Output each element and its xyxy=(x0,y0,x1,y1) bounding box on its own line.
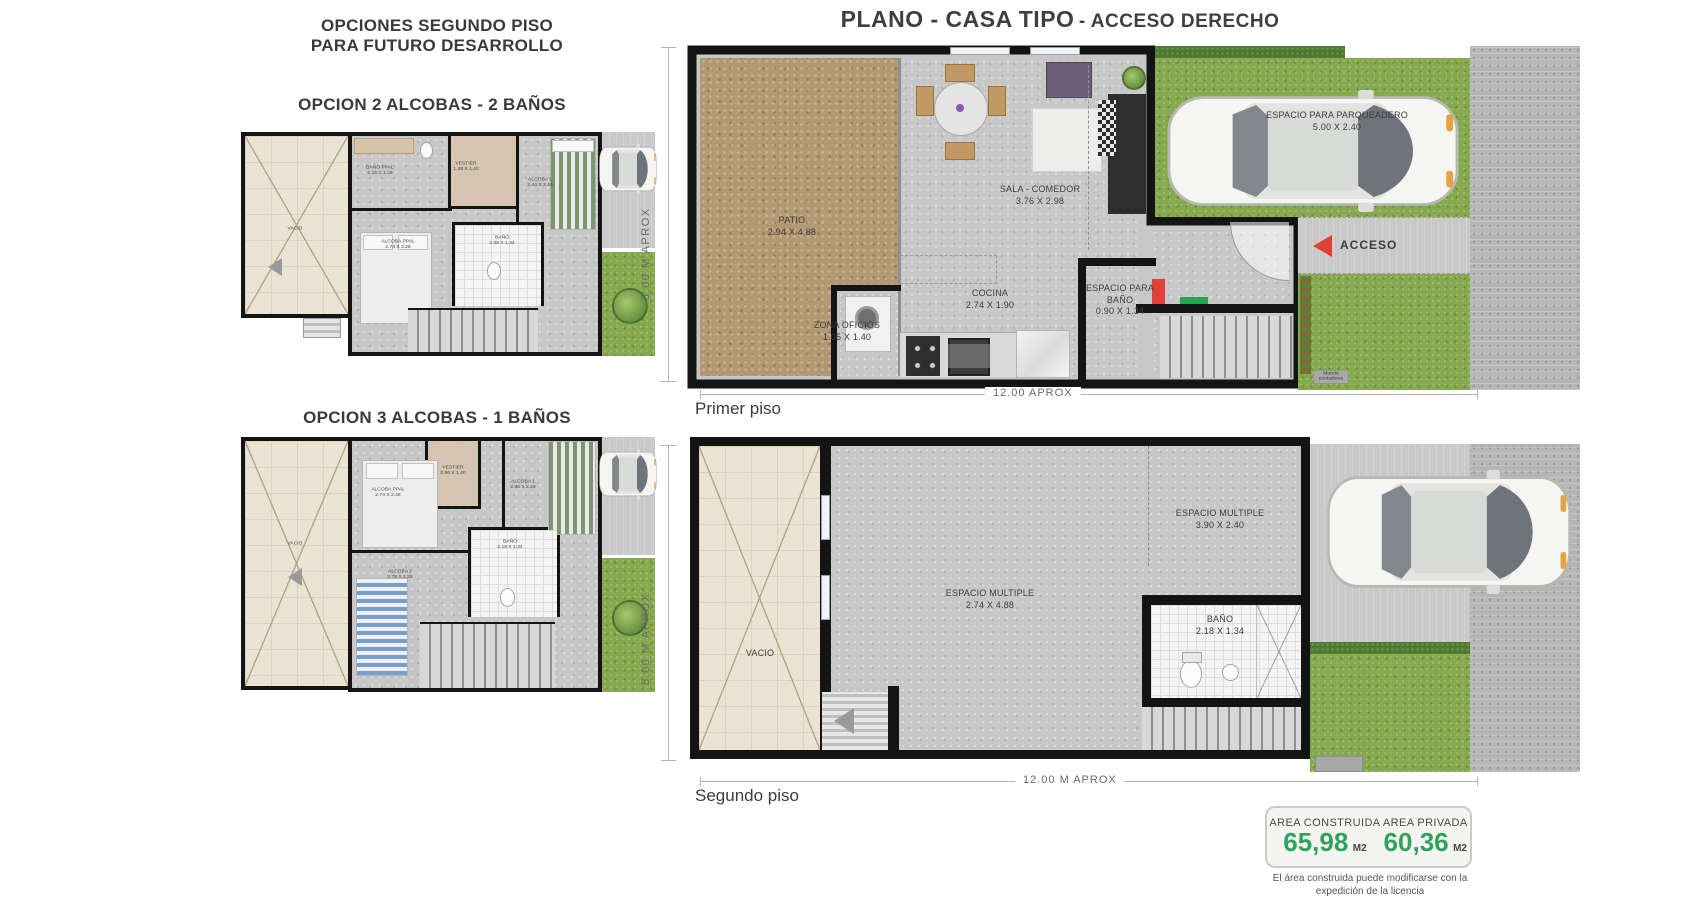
floor1-vertical-dim-label: 5.00 M APROX xyxy=(640,140,652,300)
room-label-vestier: VESTIER 1.48 X 1.40 xyxy=(446,160,486,171)
toilet-icon xyxy=(500,588,515,607)
room-label-cocina: COCINA 2.74 X 1.90 xyxy=(940,288,1040,311)
murete-box xyxy=(1315,756,1363,772)
stove-icon xyxy=(906,336,940,376)
sink-icon xyxy=(1222,664,1239,681)
room-label-bano: BAÑO 2.18 X 1.34 xyxy=(1176,614,1264,637)
room-label-parqueadero: ESPACIO PARA PARQUEADERO 5.00 X 2.40 xyxy=(1262,110,1412,133)
room-label-espacio-bano: ESPACIO PARA BAÑO 0.90 X 1.34 xyxy=(1083,283,1157,318)
car-top-view xyxy=(1326,470,1572,594)
car-top-view xyxy=(1166,90,1460,212)
chair-icon xyxy=(945,64,975,82)
patio-glass-wall xyxy=(898,58,901,376)
toilet-tank xyxy=(1182,652,1202,663)
wall xyxy=(888,686,899,750)
wall xyxy=(1136,304,1294,313)
room-label-bano: BAÑO 2.18 X 1.34 xyxy=(485,538,535,549)
area-construida-value: 65,98 xyxy=(1283,827,1348,857)
option2-title: OPCION 3 ALCOBAS - 1 BAÑOS xyxy=(262,408,612,428)
area-privada: AREA PRIVADA 60,36 M2 xyxy=(1383,817,1468,856)
wall xyxy=(541,222,544,306)
option1-stair-arrow-icon xyxy=(268,258,282,276)
dim-tick xyxy=(661,381,676,382)
wall xyxy=(1078,258,1156,266)
room-label-alcoba-ppal: ALCOBA PPAL 2.74 X 3.28 xyxy=(369,238,426,249)
options-header: OPCIONES SEGUNDO PISO PARA FUTURO DESARR… xyxy=(262,16,612,56)
hedge xyxy=(1310,642,1470,654)
dim-tick xyxy=(661,47,676,48)
sofa-icon xyxy=(1046,62,1092,98)
floor2-balcony xyxy=(822,692,888,750)
room-label-espacio-multiple-1: ESPACIO MULTIPLE 2.74 X 4.88 xyxy=(910,588,1070,611)
floor1-vertical-dim-line xyxy=(668,48,669,381)
area-disclaimer: El área construida puede modificarse con… xyxy=(1250,873,1490,898)
bed xyxy=(356,578,408,676)
room-label-bano: BAÑO 2.08 X 1.34 xyxy=(477,234,527,245)
floor2-grass xyxy=(1310,654,1470,772)
room-label-alcoba2: ALCOBA 2 2.79 X 2.28 xyxy=(370,568,430,579)
floor2-horizontal-dim-label: 12.00 M APROX xyxy=(1015,774,1125,786)
room-label-zona-oficios: ZONA OFICIOS 1.05 X 1.40 xyxy=(807,320,887,343)
dim-tick xyxy=(661,445,676,446)
bath-counter xyxy=(354,138,414,154)
wall xyxy=(478,441,481,509)
window-icon xyxy=(821,575,830,620)
murete-label: Murete contadores xyxy=(1314,370,1349,384)
option2-stairs xyxy=(420,622,555,688)
floor1-horizontal-dim-label: 12.00 APROX xyxy=(985,387,1081,399)
room-label-bano-ppal: BAÑO PPAL 2.16 X 1.28 xyxy=(351,164,408,175)
hedge xyxy=(1155,46,1345,58)
car-top-view xyxy=(599,449,657,499)
window-icon xyxy=(821,495,830,540)
double-height-line xyxy=(1148,446,1149,566)
page-title: PLANO - CASA TIPO - ACCESO DERECHO xyxy=(760,6,1360,33)
area-privada-unit: M2 xyxy=(1453,843,1467,854)
floor1-stairs xyxy=(1160,316,1292,378)
wall xyxy=(1142,595,1301,605)
wall xyxy=(1142,595,1151,707)
area-construida-unit: M2 xyxy=(1353,843,1367,854)
window-icon xyxy=(950,47,1010,55)
pillow xyxy=(366,463,398,479)
acceso-label: ACCESO xyxy=(1340,238,1397,252)
wall xyxy=(557,527,560,617)
chair-icon xyxy=(916,86,934,116)
wall xyxy=(352,550,472,553)
dim-tick xyxy=(661,760,676,761)
toilet-icon xyxy=(1180,660,1202,688)
wall xyxy=(1078,258,1086,380)
option2-stair-arrow-icon xyxy=(288,568,302,586)
floor2-stairs xyxy=(1142,707,1301,750)
plant-icon xyxy=(1122,66,1146,90)
beam-projection-outline xyxy=(900,255,997,284)
floor1-horizontal-dim-line xyxy=(700,394,1478,395)
area-summary-box: AREA CONSTRUIDA 65,98 M2 AREA PRIVADA 60… xyxy=(1265,806,1472,868)
option1-balcony xyxy=(303,318,341,338)
room-label-sala-comedor: SALA - COMEDOR 3.76 X 2.98 xyxy=(960,184,1120,207)
dim-tick xyxy=(1477,390,1478,399)
chair-icon xyxy=(988,86,1006,116)
wall xyxy=(1142,698,1301,707)
room-label-patio: PATIO 2.94 X 4.88 xyxy=(742,215,842,238)
toilet-icon xyxy=(420,142,433,159)
floor2-vertical-dim-label: 5.00 M APROX xyxy=(640,525,652,685)
floorplan-sheet: PLANO - CASA TIPO - ACCESO DERECHO OPCIO… xyxy=(0,0,1701,900)
dim-tick xyxy=(700,777,701,786)
room-label-vacio: VACIO xyxy=(270,540,320,546)
wall xyxy=(352,208,452,211)
page-title-sub: - ACCESO DERECHO xyxy=(1079,11,1279,32)
room-label-espacio-multiple-2: ESPACIO MULTIPLE 3.90 X 2.40 xyxy=(1140,508,1300,531)
option2-vacio-area xyxy=(241,437,352,690)
room-label-alcoba1: ALCOBA 1 2.85 X 2.49 xyxy=(501,478,544,489)
balcony-arrow-icon xyxy=(834,708,854,734)
table-flower-icon xyxy=(956,104,964,112)
room-label-alcoba1: ALCOBA 1 2.44 X 2.49 xyxy=(518,176,561,187)
pillow xyxy=(552,140,594,152)
acceso-arrow-icon xyxy=(1313,235,1332,257)
wall xyxy=(448,206,519,209)
chair-icon xyxy=(945,142,975,160)
rug xyxy=(1032,108,1102,172)
floor1-caption: Primer piso xyxy=(695,399,781,419)
pillow xyxy=(402,463,434,479)
room-label-vacio: VACIO xyxy=(720,648,800,660)
floor2-caption: Segundo piso xyxy=(695,786,799,806)
bed xyxy=(548,441,596,535)
toilet-icon xyxy=(487,262,501,280)
option1-title: OPCION 2 ALCOBAS - 2 BAÑOS xyxy=(262,95,602,115)
dim-tick xyxy=(1477,777,1478,786)
floor1-street xyxy=(1470,46,1580,390)
room-label-vacio: VACIO xyxy=(270,225,320,231)
area-privada-value: 60,36 xyxy=(1384,827,1449,857)
cushions-icon xyxy=(1098,100,1116,156)
room-label-alcoba-ppal: ALCOBA PPAL 2.74 X 2.48 xyxy=(358,486,418,497)
beam-projection-line xyxy=(1088,65,1089,250)
window-icon xyxy=(1030,47,1080,55)
floor2-vacio-area xyxy=(699,446,820,750)
oven-window xyxy=(948,344,990,368)
area-construida: AREA CONSTRUIDA 65,98 M2 xyxy=(1269,817,1380,856)
floor2-vertical-dim-line xyxy=(668,446,669,761)
fridge-icon xyxy=(1016,330,1070,378)
room-label-vestier: VESTIER 0.96 X 1.40 xyxy=(431,464,474,475)
dim-tick xyxy=(700,390,701,399)
option1-stairs xyxy=(408,308,538,352)
shrub-strip xyxy=(1300,276,1311,374)
page-title-main: PLANO - CASA TIPO xyxy=(841,6,1075,32)
